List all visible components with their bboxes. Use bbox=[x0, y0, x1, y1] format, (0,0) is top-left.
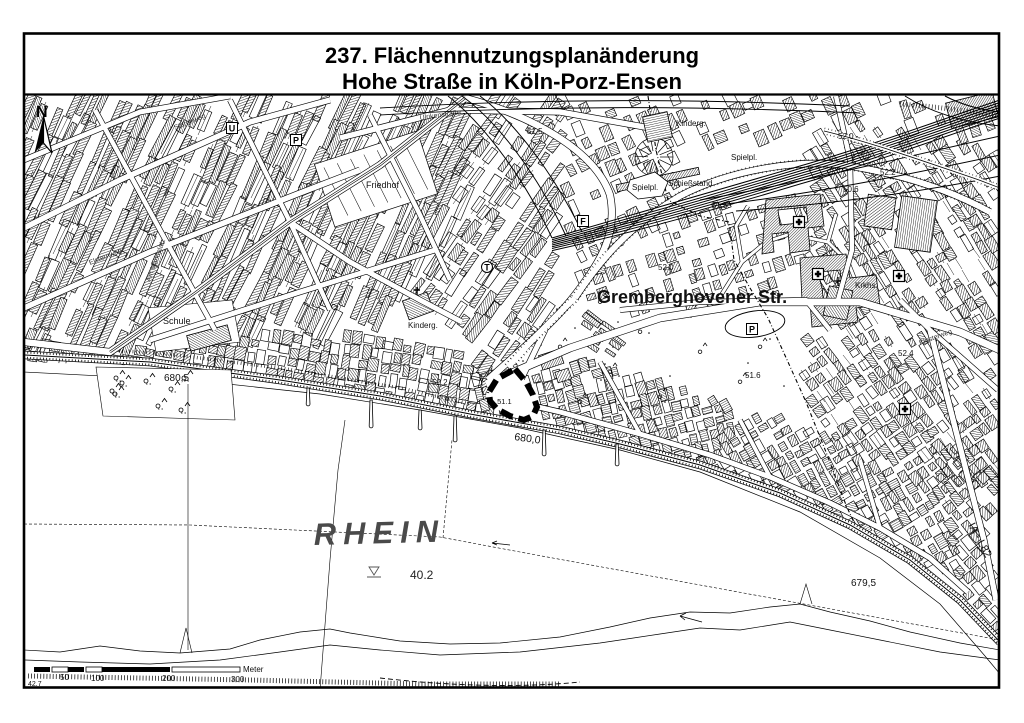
svg-text:Friedhof: Friedhof bbox=[366, 180, 400, 190]
svg-text:T: T bbox=[484, 263, 490, 273]
svg-text:200: 200 bbox=[162, 674, 176, 683]
svg-text:100: 100 bbox=[91, 674, 105, 683]
svg-text:52.0: 52.0 bbox=[658, 263, 674, 272]
svg-text:51.6: 51.6 bbox=[745, 371, 761, 380]
svg-text:Schule: Schule bbox=[163, 316, 191, 326]
svg-text:237. Flächennutzungsplanänderu: 237. Flächennutzungsplanänderung bbox=[325, 43, 699, 68]
svg-text:.51.1: .51.1 bbox=[495, 397, 512, 406]
svg-text:P: P bbox=[749, 325, 755, 335]
svg-text:Kinderg.: Kinderg. bbox=[676, 119, 706, 128]
svg-text:52.0: 52.0 bbox=[838, 132, 854, 141]
svg-text:Krkhs.: Krkhs. bbox=[855, 281, 878, 290]
svg-text:F: F bbox=[580, 217, 586, 227]
svg-text:51.5: 51.5 bbox=[712, 201, 728, 210]
svg-text:51.5: 51.5 bbox=[527, 127, 543, 136]
svg-text:50.6: 50.6 bbox=[843, 185, 859, 194]
svg-text:Gremberghovener Str.: Gremberghovener Str. bbox=[597, 287, 787, 307]
svg-text:P: P bbox=[293, 136, 299, 146]
svg-text:RHEIN: RHEIN bbox=[313, 514, 445, 552]
svg-text:50: 50 bbox=[60, 673, 69, 682]
svg-text:52.2: 52.2 bbox=[432, 378, 448, 387]
svg-text:679,5: 679,5 bbox=[851, 578, 876, 589]
svg-text:680,5: 680,5 bbox=[164, 373, 189, 384]
svg-text:Schießstand: Schießstand bbox=[668, 179, 712, 188]
svg-text:Spielpl.: Spielpl. bbox=[731, 153, 757, 162]
svg-text:52.4: 52.4 bbox=[898, 349, 914, 358]
svg-text:Spielpl.: Spielpl. bbox=[632, 183, 658, 192]
svg-text:Meter: Meter bbox=[243, 665, 264, 674]
svg-text:U: U bbox=[229, 124, 236, 134]
svg-text:Hohe Straße in Köln-Porz-Ensen: Hohe Straße in Köln-Porz-Ensen bbox=[342, 69, 682, 94]
svg-text:52.2: 52.2 bbox=[880, 168, 896, 177]
svg-text:300: 300 bbox=[231, 675, 245, 684]
svg-text:40.2: 40.2 bbox=[410, 568, 434, 582]
svg-text:N: N bbox=[36, 104, 48, 121]
svg-text:Kinderg.: Kinderg. bbox=[408, 321, 438, 330]
